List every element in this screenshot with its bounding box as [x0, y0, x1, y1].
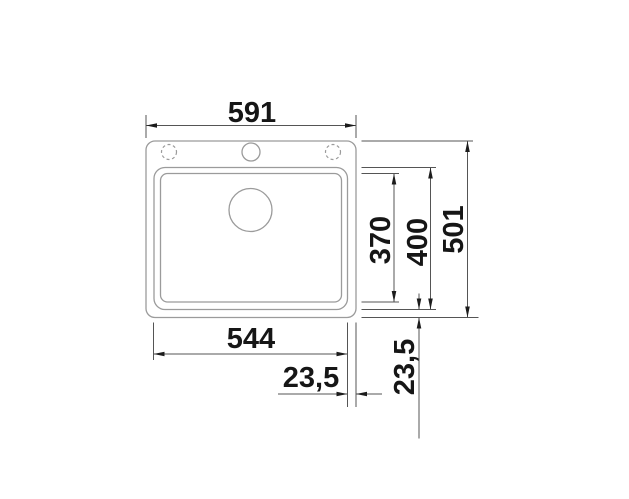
arrowhead-right: [345, 123, 356, 128]
dim-label-bowl-width: 544: [227, 323, 275, 355]
tap-hole-center: [242, 143, 260, 161]
tap-hole-right-optional: [326, 145, 341, 160]
arrowhead-top: [428, 168, 433, 179]
dim-label-bowl-length: 400: [402, 218, 434, 266]
arrowhead-bottom: [392, 291, 397, 302]
dim-label-overall-width: 591: [228, 97, 276, 129]
arrowhead-bottom: [428, 299, 433, 310]
dim-bowl-inner-length: 370: [362, 174, 400, 303]
tap-hole-left-optional: [162, 145, 177, 160]
dim-label-bowl-inner-length: 370: [365, 216, 397, 264]
arrowhead-left: [356, 392, 367, 397]
dim-label-offset-bottom: 23,5: [389, 339, 421, 395]
arrowhead-right: [337, 352, 348, 357]
bowl-inner-outline: [161, 174, 342, 303]
arrowhead-left: [154, 352, 165, 357]
sink-body: [146, 141, 356, 318]
arrowhead-up: [417, 318, 422, 329]
dim-label-offset-right: 23,5: [283, 362, 339, 394]
drain-hole: [229, 189, 272, 232]
dim-overall-width: 591: [146, 97, 356, 138]
technical-drawing-canvas: 591 544 23,5 370: [0, 0, 629, 499]
arrowhead-top: [465, 141, 470, 152]
dim-offset-right: 23,5: [278, 323, 382, 408]
arrowhead-left: [146, 123, 157, 128]
arrowhead-top: [392, 174, 397, 185]
arrowhead-bottom: [465, 307, 470, 318]
sink-dimension-diagram: 591 544 23,5 370: [0, 0, 629, 499]
arrowhead-down: [417, 299, 422, 310]
dim-label-overall-depth: 501: [438, 205, 470, 253]
dim-offset-bottom: 23,5: [389, 294, 421, 439]
